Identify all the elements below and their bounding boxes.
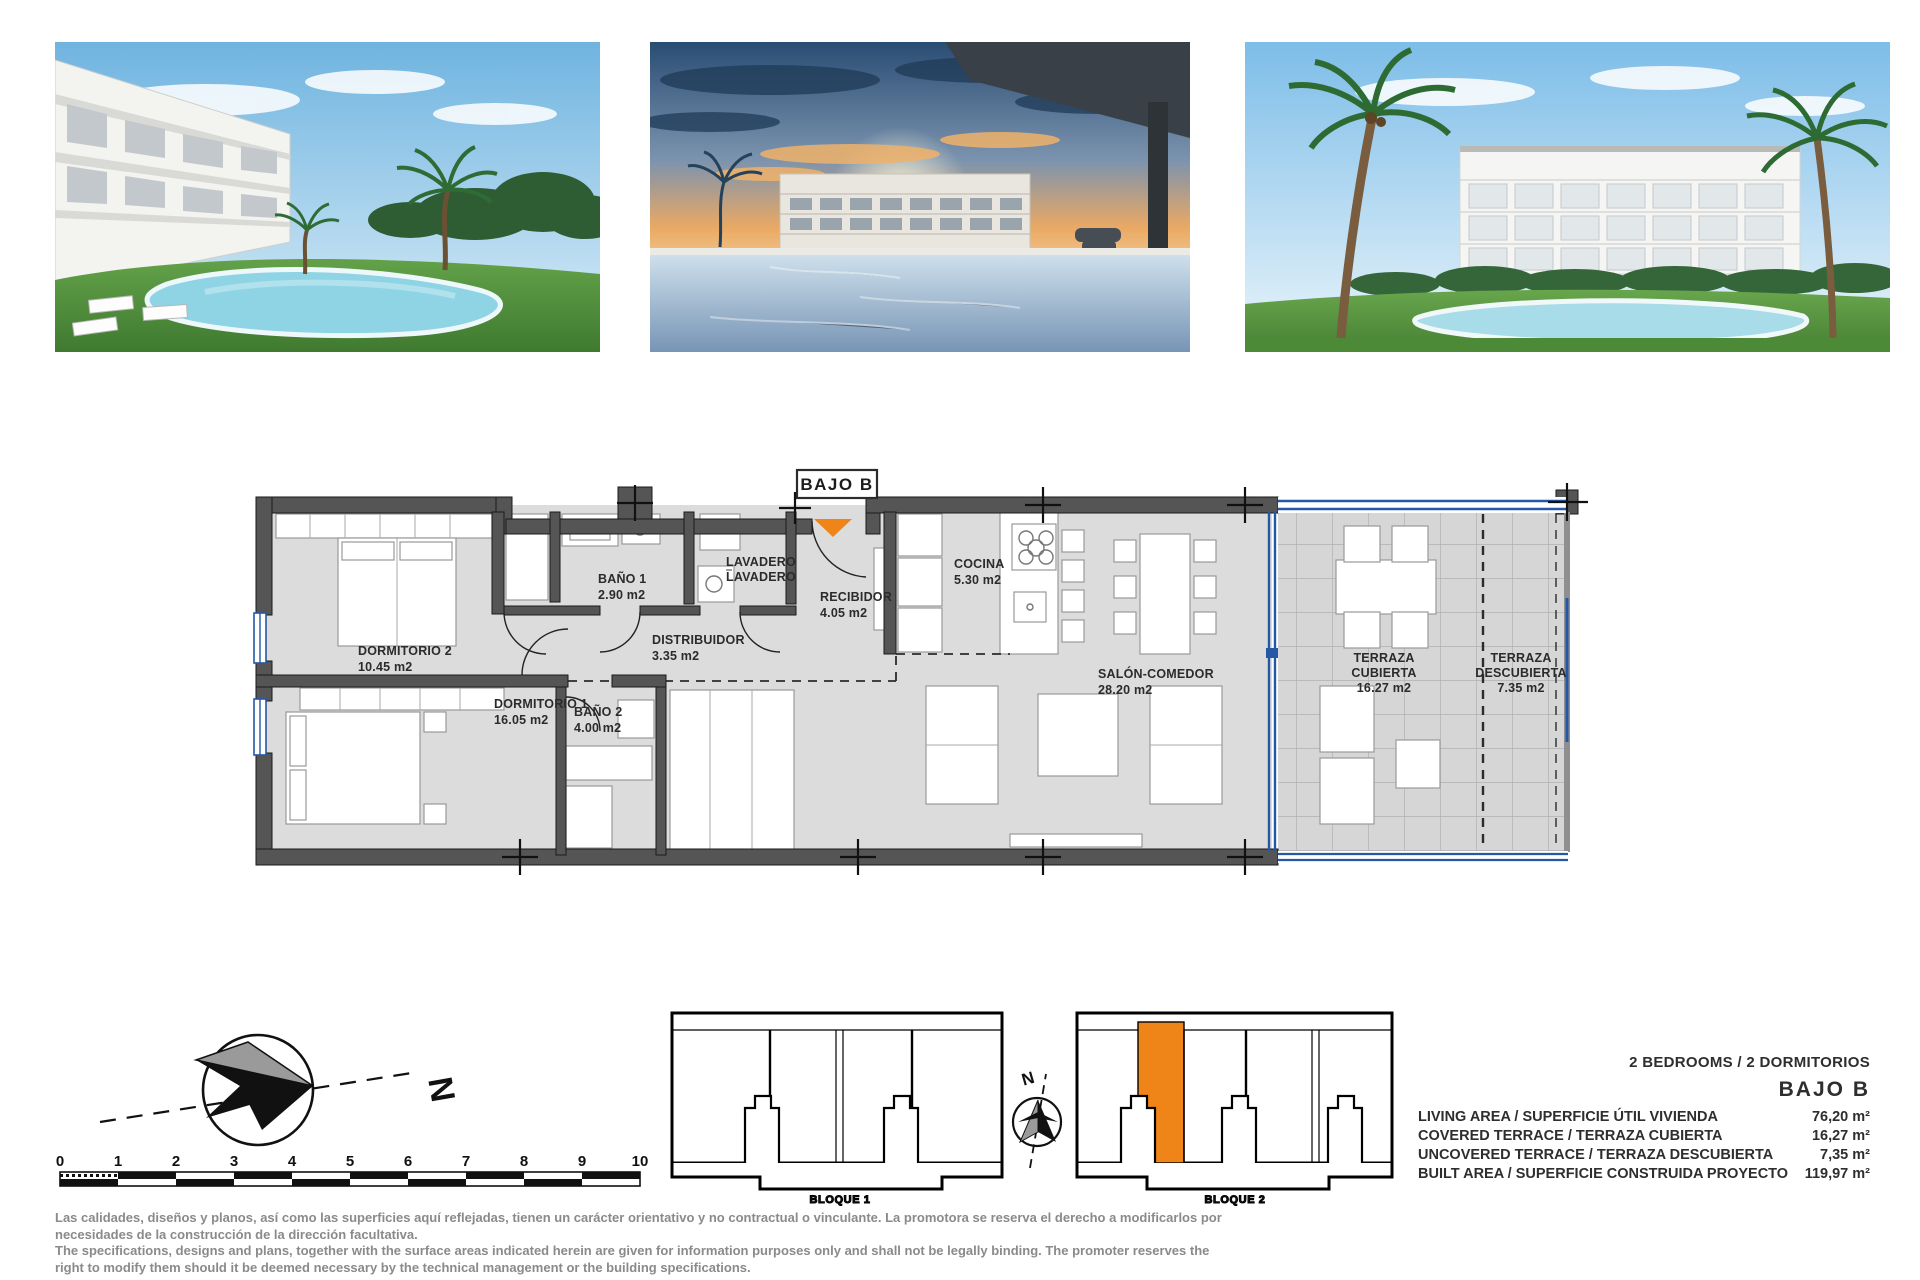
area-summary: 2 BEDROOMS / 2 DORMITORIOS BAJO B LIVING… — [1418, 1054, 1870, 1184]
scale-tick: 9 — [578, 1153, 586, 1170]
room-label-distribuidor: DISTRIBUIDOR — [652, 633, 745, 647]
summary-row-label: LIVING AREA / SUPERFICIE ÚTIL VIVIENDA — [1418, 1108, 1718, 1127]
disclaimer-es-line2: necesidades de la construcción de la dir… — [55, 1227, 1385, 1244]
compass-main-icon: N — [100, 1035, 462, 1145]
bloque1-label: BLOQUE 1 — [809, 1194, 870, 1206]
scale-tick: 1 — [114, 1153, 122, 1170]
room-area-recibidor: 4.05 m2 — [820, 606, 867, 620]
scale-tick: 5 — [346, 1153, 354, 1170]
unit-title: BAJO B — [800, 475, 873, 494]
summary-row-label: BUILT AREA / SUPERFICIE CONSTRUIDA PROYE… — [1418, 1165, 1788, 1184]
site-plan-bloque1: BLOQUE 1 — [672, 1013, 1002, 1206]
bloque2-label: BLOQUE 2 — [1204, 1194, 1265, 1206]
summary-rows: LIVING AREA / SUPERFICIE ÚTIL VIVIENDA 7… — [1418, 1108, 1870, 1184]
summary-row-label: UNCOVERED TERRACE / TERRAZA DESCUBIERTA — [1418, 1146, 1773, 1165]
summary-row: COVERED TERRACE / TERRAZA CUBIERTA 16,27… — [1418, 1127, 1870, 1146]
summary-row-value: 76,20 m² — [1812, 1108, 1870, 1127]
room-label-terraza-cubierta-2: CUBIERTA — [1351, 666, 1416, 680]
scale-tick: 4 — [288, 1153, 297, 1170]
disclaimer-es-line1: Las calidades, diseños y planos, así com… — [55, 1210, 1385, 1227]
scale-tick: 8 — [520, 1153, 528, 1170]
scale-tick: 0 — [56, 1153, 64, 1170]
scale-tick: 2 — [172, 1153, 180, 1170]
room-label-terraza-descubierta-1: TERRAZA — [1490, 651, 1551, 665]
site-plan-bloque2: BLOQUE 2 — [1077, 1013, 1392, 1206]
scale-tick: 3 — [230, 1153, 238, 1170]
room-label-dormitorio2: DORMITORIO 2 — [358, 644, 452, 658]
disclaimer-en-line1: The specifications, designs and plans, t… — [55, 1243, 1385, 1260]
legal-disclaimer: Las calidades, diseños y planos, así com… — [55, 1210, 1385, 1276]
scale-tick: 7 — [462, 1153, 470, 1170]
room-area-dormitorio1: 16.05 m2 — [494, 713, 548, 727]
compass-small-icon: N — [1013, 1068, 1061, 1168]
room-label-recibidor: RECIBIDOR — [820, 590, 892, 604]
summary-unit-name: BAJO B — [1418, 1078, 1870, 1102]
scale-tick: 10 — [632, 1153, 649, 1170]
room-label-lavadero-1: LAVADERO — [726, 555, 796, 569]
room-area-bano1: 2.90 m2 — [598, 588, 645, 602]
scale-bar: 0 1 2 3 4 5 6 7 8 9 10 — [56, 1153, 649, 1186]
summary-row: LIVING AREA / SUPERFICIE ÚTIL VIVIENDA 7… — [1418, 1108, 1870, 1127]
room-label-bano1: BAÑO 1 — [598, 571, 646, 586]
summary-row-value: 119,97 m² — [1805, 1165, 1870, 1184]
summary-row: BUILT AREA / SUPERFICIE CONSTRUIDA PROYE… — [1418, 1165, 1870, 1184]
scale-tick: 6 — [404, 1153, 412, 1170]
room-area-dormitorio2: 10.45 m2 — [358, 660, 412, 674]
room-label-bano2: BAÑO 2 — [574, 704, 622, 719]
summary-row-label: COVERED TERRACE / TERRAZA CUBIERTA — [1418, 1127, 1723, 1146]
room-label-lavadero-2: LAVADERO — [726, 570, 796, 584]
summary-row-value: 7,35 m² — [1820, 1146, 1870, 1165]
room-label-salon: SALÓN-COMEDOR — [1098, 666, 1214, 681]
brochure-page: BAJO B DORMITORIO 2 10.45 m2 BAÑO 1 2.90… — [0, 0, 1920, 1280]
floor-plan: BAJO B DORMITORIO 2 10.45 m2 BAÑO 1 2.90… — [254, 470, 1588, 875]
room-area-distribuidor: 3.35 m2 — [652, 649, 699, 663]
room-label-terraza-cubierta-1: TERRAZA — [1353, 651, 1414, 665]
room-area-salon: 28.20 m2 — [1098, 683, 1152, 697]
summary-row: UNCOVERED TERRACE / TERRAZA DESCUBIERTA … — [1418, 1146, 1870, 1165]
summary-row-value: 16,27 m² — [1812, 1127, 1870, 1146]
north-label-small: N — [1020, 1068, 1037, 1090]
room-area-terraza-cubierta: 16.27 m2 — [1357, 681, 1411, 695]
disclaimer-en-line2: right to modify them should it be deemed… — [55, 1260, 1385, 1277]
room-label-terraza-descubierta-2: DESCUBIERTA — [1475, 666, 1567, 680]
room-area-bano2: 4.00 m2 — [574, 721, 621, 735]
room-area-cocina: 5.30 m2 — [954, 573, 1001, 587]
north-label-main: N — [420, 1074, 462, 1105]
bedrooms-line: 2 BEDROOMS / 2 DORMITORIOS — [1418, 1054, 1870, 1071]
room-area-terraza-descubierta: 7.35 m2 — [1497, 681, 1544, 695]
room-label-cocina: COCINA — [954, 557, 1005, 571]
